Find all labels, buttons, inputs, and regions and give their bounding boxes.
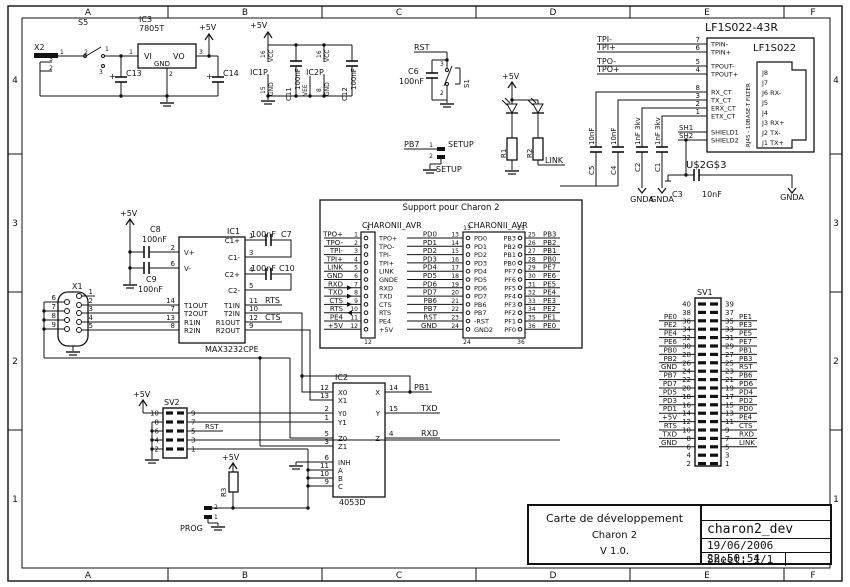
- pin-pad: [698, 328, 706, 331]
- pin-pad: [698, 462, 706, 465]
- support-left-header-label: CHARONII_AVR: [362, 221, 422, 230]
- pin-name: Y: [375, 410, 381, 418]
- junction-dot: [165, 94, 168, 97]
- pin-number: 14: [166, 297, 175, 305]
- pin-pad: [466, 311, 470, 315]
- pin-number: 16: [451, 256, 459, 263]
- net-label: PE1: [543, 314, 556, 322]
- pin-name: PD0: [474, 235, 487, 243]
- net-label: PE0: [664, 313, 677, 321]
- pin-pad: [710, 437, 718, 440]
- net-label: PD0: [739, 405, 753, 413]
- pin-number: 25: [517, 225, 525, 232]
- pin-name: TPOUT-: [710, 63, 735, 71]
- pin-number: 2: [171, 244, 175, 252]
- schematic-label: X1: [72, 282, 83, 291]
- schematic-label: C2: [634, 163, 642, 172]
- schematic-label: 2: [169, 71, 173, 78]
- pin-name: PD4: [474, 268, 487, 276]
- pin-name: TPI-: [378, 251, 392, 259]
- schematic-label: CTS: [265, 313, 281, 322]
- sheet-row: Sheet: 1/1: [702, 553, 830, 566]
- junction-dot: [306, 468, 309, 471]
- pin-number: 1: [366, 225, 370, 232]
- schematic-label: +5V: [120, 209, 138, 218]
- led-arrow-icon: [505, 98, 510, 103]
- pin-number: 2: [354, 240, 358, 247]
- pin-number: 7: [354, 281, 358, 288]
- frame-letter: E: [704, 8, 710, 18]
- schematic-label: 1: [429, 142, 433, 149]
- pin-number: 14: [451, 240, 459, 247]
- pin-pad: [710, 403, 718, 406]
- pin-pad: [466, 286, 470, 290]
- schematic-label: C13: [126, 69, 142, 78]
- schematic-label: 1: [696, 108, 700, 116]
- pin-pad: [364, 236, 368, 240]
- polarity-plus: +: [109, 72, 116, 81]
- pin-pad: [364, 294, 368, 298]
- rj45-pin-label: J2 TX-: [761, 129, 781, 137]
- net-label: +5V: [328, 322, 343, 330]
- pin-number: 10: [320, 470, 329, 478]
- frame-number: 4: [833, 76, 839, 86]
- pin-name: TPIN-: [710, 41, 729, 49]
- schematic-label: 7: [696, 36, 700, 44]
- pin-pad: [177, 438, 184, 441]
- pin-number: 8: [354, 290, 358, 297]
- net-label: PD5: [663, 388, 677, 396]
- net-label: PB1: [739, 346, 752, 354]
- net-label: RST: [205, 423, 219, 431]
- net-label: GND: [327, 272, 343, 280]
- pin-name: TPIN+: [710, 49, 731, 57]
- schematic-canvas: AABBCCDDEEFF44332211++S5IC37805T+5VX2VIV…: [0, 0, 850, 587]
- pin-number: 14: [389, 384, 398, 392]
- pin-number: 11: [350, 315, 358, 322]
- db9-connector-body: [58, 292, 88, 346]
- pin-name: PD5: [474, 276, 487, 284]
- schematic-label: TPI+: [596, 43, 616, 52]
- pin-name: CTS: [379, 301, 392, 309]
- schematic-label: LINK: [545, 156, 564, 165]
- pin-number: 8: [171, 322, 175, 330]
- pin-pad: [166, 420, 173, 423]
- schematic-label: +5V: [502, 72, 520, 81]
- schematic-label: 10nF: [588, 128, 596, 145]
- schematic-label: 4: [696, 66, 701, 74]
- net-label: PE3: [543, 297, 556, 305]
- pin-number: 25: [528, 232, 536, 239]
- net-label: PB2: [664, 355, 677, 363]
- pin-pad: [177, 420, 184, 423]
- schematic-label: R3: [220, 488, 228, 497]
- net-label: PE0: [543, 322, 556, 330]
- schematic-label: S1: [463, 79, 471, 88]
- net-label: PB2: [543, 239, 556, 247]
- schematic-label: S5: [78, 18, 88, 27]
- gnda-icon: [638, 188, 646, 193]
- schematic-label: GND: [268, 82, 275, 96]
- pin-pad: [177, 429, 184, 432]
- pin-number: 17: [451, 265, 459, 272]
- pin-pad: [698, 344, 706, 347]
- pin-number: 9: [249, 322, 253, 330]
- pin-name: TPO-: [378, 243, 395, 251]
- pin-pad: [177, 411, 184, 414]
- pin-number: 37: [725, 309, 734, 317]
- schematic-label: 8: [52, 312, 56, 320]
- net-label: LINK: [327, 264, 343, 272]
- pin-number: 3: [354, 248, 358, 255]
- pin-number: 4: [687, 452, 692, 460]
- net-label: PD1: [423, 239, 437, 247]
- schematic-label: 1nF 3kv: [634, 117, 642, 145]
- schematic-label: 2: [440, 90, 444, 97]
- sv1-header-label: SV1: [697, 288, 713, 297]
- pin-pad: [698, 428, 706, 431]
- junction-dot: [258, 356, 261, 359]
- schematic-label: RST: [414, 43, 430, 52]
- net-label: PB3: [543, 231, 556, 239]
- wire: [86, 47, 101, 56]
- schematic-label: 3: [440, 61, 444, 68]
- pin-name: INH: [338, 459, 351, 467]
- net-label: PB1: [543, 247, 556, 255]
- junction-dot: [119, 54, 122, 57]
- schematic-label: VCC: [268, 50, 275, 62]
- pin-pad: [698, 311, 706, 314]
- schematic-label: C4: [610, 165, 618, 175]
- schematic-label: 100nF: [251, 230, 276, 239]
- schematic-label: 4: [89, 314, 94, 322]
- frame-number: 3: [833, 219, 839, 229]
- junction-dot: [42, 318, 45, 321]
- schematic-label: 2: [214, 504, 218, 511]
- pin-pad: [518, 269, 522, 273]
- pin-name: TXD: [378, 293, 392, 301]
- pin-pad: [166, 447, 173, 450]
- net-label: PD4: [739, 388, 754, 396]
- pin-name: T1IN: [223, 302, 240, 310]
- timestamp: 19/06/2006 22:50:54: [702, 539, 830, 553]
- schematic-label: PB1: [414, 383, 429, 392]
- pin-number: 15: [451, 248, 459, 255]
- schematic-label: IC2P: [306, 68, 324, 77]
- schematic-page: AABBCCDDEEFF44332211++S5IC37805T+5VX2VIV…: [0, 0, 850, 587]
- pin-pad: [518, 236, 522, 240]
- schematic-label: VCC: [324, 50, 331, 62]
- schematic-label: GNDA: [650, 195, 674, 204]
- schematic-label: 6: [52, 294, 57, 302]
- pin-pad: [698, 353, 706, 356]
- pin-pad: [364, 261, 368, 265]
- frame-number: 4: [12, 76, 18, 86]
- junction-dot: [510, 98, 513, 101]
- pin-name: Z: [375, 435, 380, 443]
- direction-arrow-icon: [347, 294, 352, 299]
- board-title: Carte de développement: [546, 512, 683, 525]
- pin-number: 1: [191, 446, 195, 454]
- pin-number: 1: [354, 232, 358, 239]
- pin-pad: [710, 395, 718, 398]
- rj45-filter-label: RJ45 - 10BASE-T FILTER: [746, 83, 752, 147]
- schematic-label: C8: [150, 225, 161, 234]
- led-icon: [507, 104, 517, 113]
- pin-pad: [710, 319, 718, 322]
- pin-number: 3: [325, 438, 329, 446]
- pin-name: T1OUT: [183, 302, 208, 310]
- schematic-label: U$2G$3: [686, 160, 727, 171]
- net-label: PB7: [424, 305, 437, 313]
- component-outline: [533, 138, 543, 160]
- pin-number: 8: [155, 419, 159, 427]
- pin-pad: [698, 454, 706, 457]
- pin-name: A: [338, 467, 343, 475]
- pin-number: 12: [350, 323, 358, 330]
- schematic-label: IC3: [139, 15, 152, 24]
- pin-number: 30: [528, 273, 536, 280]
- schematic-label: 3: [199, 49, 203, 56]
- pin-name: T2OUT: [183, 310, 208, 318]
- pin-number: 11: [320, 462, 329, 470]
- net-label: PB6: [739, 372, 753, 380]
- schematic-label: 15: [260, 86, 267, 94]
- solder-pad: [437, 147, 445, 151]
- net-label: CTS: [739, 422, 753, 430]
- frame-number: 1: [12, 495, 18, 505]
- pin-pad: [698, 302, 706, 305]
- pin-pad: [710, 445, 718, 448]
- pin-number: 2: [155, 446, 159, 454]
- pin-name: PB7: [474, 309, 487, 317]
- net-label: TPO-: [325, 239, 343, 247]
- pin-pad: [466, 319, 470, 323]
- junction-dot: [231, 506, 234, 509]
- net-label: LINK: [739, 439, 755, 447]
- pin-pad: [166, 411, 173, 414]
- pin-number: 5: [354, 265, 358, 272]
- pin-name: X: [375, 389, 380, 397]
- rj45-pin-label: J5: [761, 99, 768, 107]
- frame-letter: B: [242, 8, 248, 18]
- pin-pad: [466, 245, 470, 249]
- schematic-label: 2: [89, 297, 93, 305]
- board-version: V 1.0.: [600, 546, 629, 557]
- net-label: PB0: [543, 255, 556, 263]
- pin-name: PD7: [474, 293, 487, 301]
- title-block-description: Carte de développement Charon 2 V 1.0.: [529, 506, 702, 563]
- net-label: GND: [661, 439, 677, 447]
- net-label: RST: [739, 363, 753, 371]
- schematic-label: RTS: [265, 296, 280, 305]
- ic2-4053d-value: 4053D: [339, 498, 366, 507]
- schematic-label: 100nF: [399, 77, 424, 86]
- pin-number: 5: [325, 430, 329, 438]
- frame-letter: D: [550, 8, 557, 18]
- pin-pad: [466, 294, 470, 298]
- pin-number: 35: [528, 315, 536, 322]
- project-name: charon2_dev: [702, 520, 830, 539]
- pin-pad: [518, 311, 522, 315]
- pin-name: X0: [338, 389, 347, 397]
- pin-name: PF6: [504, 276, 516, 284]
- net-label: PD0: [423, 231, 437, 239]
- junction-dot: [306, 476, 309, 479]
- pin-number: 33: [528, 298, 536, 305]
- solder-pad: [204, 515, 212, 519]
- pin-pad: [518, 328, 522, 332]
- pin-number: 7: [171, 305, 175, 313]
- schematic-label: 10nF: [610, 128, 618, 145]
- pin-circle: [77, 320, 82, 325]
- pin-name: R2OUT: [216, 327, 241, 335]
- schematic-label: 7: [52, 303, 56, 311]
- junction-dot: [306, 506, 309, 509]
- junction-dot: [150, 447, 153, 450]
- pin-pad: [710, 386, 718, 389]
- pin-pad: [710, 462, 718, 465]
- pin-pad: [166, 438, 173, 441]
- pin-name: PB2: [503, 243, 516, 251]
- schematic-label: C9: [146, 275, 157, 284]
- junction-dot: [42, 309, 45, 312]
- pin-pad: [518, 303, 522, 307]
- pin-pad: [364, 319, 368, 323]
- net-label: PD4: [423, 264, 438, 272]
- pin-number: 21: [451, 298, 459, 305]
- junction-dot: [128, 250, 131, 253]
- pin-pad: [698, 370, 706, 373]
- sv1-header: [695, 298, 721, 466]
- junction-dot: [128, 266, 131, 269]
- net-label: PB6: [424, 297, 438, 305]
- schematic-label: 1: [105, 46, 109, 53]
- net-label: PD2: [739, 397, 753, 405]
- schematic-label: 16: [260, 50, 267, 58]
- frame-letter: A: [85, 571, 92, 581]
- pin-name: GND2: [474, 326, 493, 334]
- pin-name: RXD: [379, 284, 393, 292]
- schematic-label: 5: [89, 322, 93, 330]
- net-label: PE4: [664, 330, 678, 338]
- schematic-label: TXD: [420, 404, 438, 413]
- junction-dot: [445, 58, 448, 61]
- pin-pad: [698, 386, 706, 389]
- frame-number: 1: [833, 495, 839, 505]
- pin-pad: [710, 454, 718, 457]
- pin-pad: [710, 420, 718, 423]
- pin-number: 11: [249, 297, 258, 305]
- schematic-label: SETUP: [448, 140, 474, 149]
- schematic-label: 2: [49, 65, 53, 72]
- pin-name: PF1: [504, 318, 516, 326]
- pin-pad: [466, 278, 470, 282]
- pin-number: 32: [528, 290, 536, 297]
- pin-circle: [446, 69, 449, 72]
- pin-name: PF7: [504, 268, 516, 276]
- pin-number: 13: [463, 225, 471, 232]
- pin-name: R1OUT: [216, 319, 241, 327]
- pin-name: C: [338, 483, 343, 491]
- ic1-max3232cpe-ref: IC1: [227, 227, 240, 236]
- pin-number: 18: [451, 273, 459, 280]
- net-label: PD1: [663, 405, 677, 413]
- component-outline: [229, 472, 238, 492]
- pin-circle: [102, 65, 105, 68]
- pin-pad: [710, 378, 718, 381]
- net-label: PD3: [423, 255, 437, 263]
- frame-letter: F: [810, 571, 815, 581]
- schematic-label: R2: [526, 149, 534, 158]
- rj45-pin-label: J1 TX+: [761, 139, 784, 147]
- rj45-pin-label: J3 RX+: [761, 119, 785, 127]
- pin-pad: [364, 311, 368, 315]
- junction-dot: [322, 43, 325, 46]
- pin-circle: [102, 55, 105, 58]
- direction-arrow-icon: [347, 285, 352, 290]
- pin-pad: [466, 236, 470, 240]
- schematic-label: 8: [316, 88, 323, 92]
- junction-dot: [306, 484, 309, 487]
- net-label: RST: [423, 314, 437, 322]
- pin-name: PE4: [379, 318, 391, 326]
- pin-name: TPOUT+: [710, 71, 738, 79]
- pin-number: 12: [320, 384, 329, 392]
- pin-number: 9: [191, 410, 195, 418]
- net-label: PE5: [739, 330, 752, 338]
- schematic-label: C14: [223, 69, 239, 78]
- schematic-label: VEE: [302, 84, 309, 96]
- pin-number: 4: [155, 437, 160, 445]
- net-label: RXD: [739, 430, 754, 438]
- rj45-pin-label: J6 RX-: [761, 89, 782, 97]
- pin-pad: [710, 361, 718, 364]
- schematic-label: C7: [281, 230, 292, 239]
- pin-pad: [698, 437, 706, 440]
- pin-circle: [65, 327, 70, 332]
- lf1s022-connector-value: LF1S022: [753, 43, 796, 54]
- pin-name: PD1: [474, 243, 487, 251]
- pin-name: Z1: [338, 443, 347, 451]
- schematic-label: C5: [588, 166, 596, 175]
- junction-dot: [150, 438, 153, 441]
- frame-letter: F: [810, 8, 815, 18]
- pin-number: 10: [249, 305, 258, 313]
- pin-number: 2: [325, 405, 329, 413]
- pin-name: Y0: [337, 410, 347, 418]
- pin-pad: [698, 412, 706, 415]
- net-label: TPO+: [322, 231, 343, 239]
- pin-number: 3: [725, 452, 729, 460]
- pin-number: 26: [528, 240, 536, 247]
- pin-number: 40: [682, 301, 691, 309]
- ic2-4053d-ref: IC2: [335, 373, 348, 382]
- schematic-label: C12: [341, 87, 349, 101]
- schematic-label: C1: [654, 163, 662, 172]
- pin-name: SHIELD1: [711, 129, 739, 137]
- junction-dot: [408, 390, 411, 393]
- led-icon: [533, 104, 543, 113]
- schematic-label: 1: [89, 288, 93, 296]
- net-label: RTS: [664, 422, 678, 430]
- schematic-label: 2: [84, 49, 88, 56]
- pin-name: RX_CT: [711, 89, 732, 97]
- frame-letter: D: [550, 571, 557, 581]
- pin-name: LINK: [379, 268, 394, 276]
- pin-name: PB0: [503, 259, 516, 267]
- frame-number: 3: [12, 219, 18, 229]
